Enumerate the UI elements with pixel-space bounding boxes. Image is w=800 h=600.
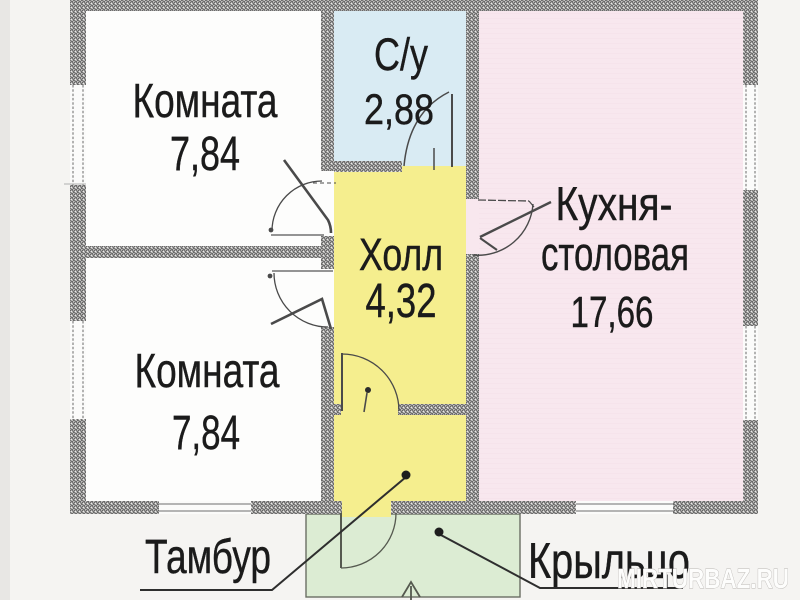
svg-text:Комната: Комната bbox=[135, 345, 280, 398]
svg-text:4,32: 4,32 bbox=[366, 275, 437, 328]
svg-text:столовая: столовая bbox=[541, 227, 689, 280]
svg-text:Кухня-: Кухня- bbox=[556, 177, 673, 230]
svg-text:7,84: 7,84 bbox=[172, 407, 240, 460]
svg-text:2,88: 2,88 bbox=[364, 86, 434, 134]
svg-text:Тамбур: Тамбур bbox=[145, 531, 271, 584]
svg-text:17,66: 17,66 bbox=[571, 288, 654, 337]
svg-text:Холл: Холл bbox=[359, 229, 443, 280]
svg-text:Комната: Комната bbox=[133, 75, 278, 128]
svg-text:7,84: 7,84 bbox=[170, 128, 240, 181]
svg-text:С/у: С/у bbox=[374, 29, 428, 80]
svg-text:MIRTURBAZ.RU: MIRTURBAZ.RU bbox=[617, 563, 789, 594]
